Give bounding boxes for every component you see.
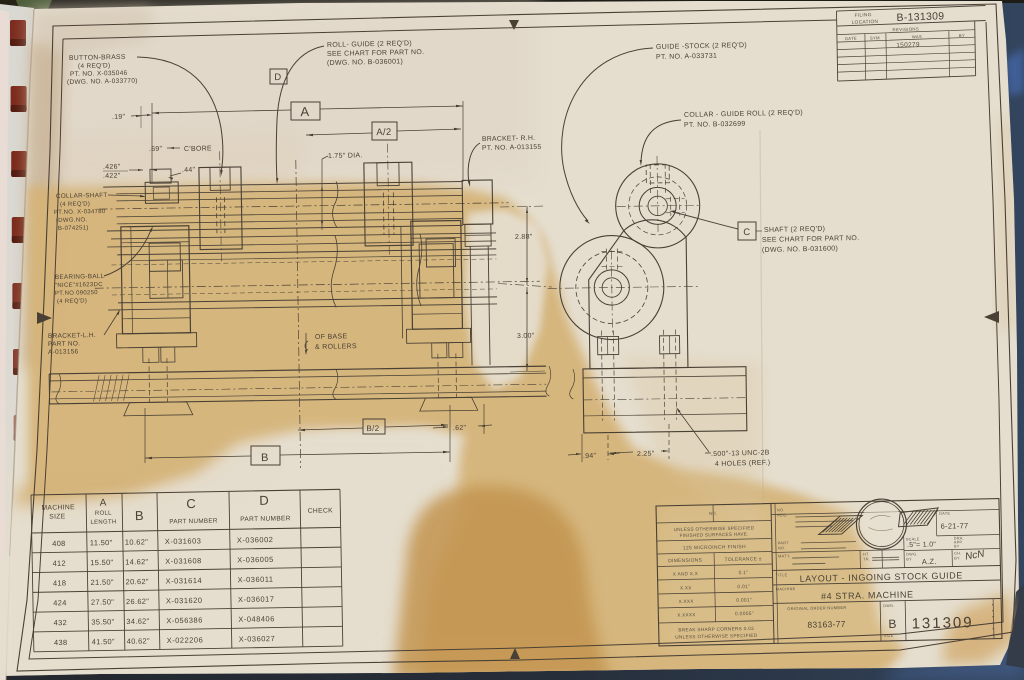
svg-text:X.XX: X.XX: [680, 585, 692, 590]
svg-text:X-036011: X-036011: [238, 575, 274, 585]
svg-text:150279: 150279: [896, 41, 920, 49]
svg-text:B: B: [135, 508, 144, 523]
svg-text:BUTTON-BRASS: BUTTON-BRASS: [69, 54, 126, 62]
svg-text:SYM: SYM: [870, 35, 880, 40]
svg-text:(4 REQ'D): (4 REQ'D): [78, 62, 111, 70]
svg-text:.62": .62": [453, 425, 467, 432]
svg-text:432: 432: [54, 618, 68, 627]
svg-text:PT. NO. X-035046: PT. NO. X-035046: [70, 70, 128, 78]
svg-text:X-031603: X-031603: [165, 536, 202, 546]
svg-text:.422": .422": [103, 173, 121, 180]
svg-text:131309: 131309: [911, 614, 973, 632]
svg-text:BRACKET- R.H.: BRACKET- R.H.: [482, 135, 536, 143]
svg-text:1.75" DIA.: 1.75" DIA.: [328, 152, 363, 160]
svg-text:BY: BY: [954, 544, 960, 548]
svg-text:NO.: NO.: [778, 546, 786, 550]
svg-text:X-031608: X-031608: [165, 556, 202, 566]
svg-text:PT.NO. X-034780: PT.NO. X-034780: [54, 209, 106, 216]
svg-text:X-036027: X-036027: [239, 634, 276, 644]
svg-text:SIZE: SIZE: [49, 513, 66, 520]
svg-text:424: 424: [53, 598, 67, 607]
svg-text:A: A: [100, 498, 107, 509]
svg-text:BRACKET-L.H.: BRACKET-L.H.: [48, 332, 96, 340]
svg-text:& ROLLERS: & ROLLERS: [315, 343, 357, 351]
svg-text:C'BORE: C'BORE: [184, 145, 212, 153]
svg-text:X-048406: X-048406: [238, 614, 275, 624]
svg-text:B-074251): B-074251): [58, 225, 89, 232]
svg-text:WAS: WAS: [912, 34, 922, 39]
svg-text:14.62": 14.62": [125, 557, 148, 566]
svg-text:4 HOLES (REF.): 4 HOLES (REF.): [715, 460, 771, 468]
svg-text:34.62": 34.62": [126, 617, 149, 626]
svg-text:20.62": 20.62": [126, 577, 149, 586]
svg-text:412: 412: [52, 559, 66, 568]
svg-text:.94": .94": [583, 453, 597, 460]
svg-text:BY: BY: [954, 556, 960, 560]
svg-text:41.50": 41.50": [92, 637, 115, 646]
svg-text:BEARING-BALL: BEARING-BALL: [55, 273, 105, 281]
svg-text:ROLL: ROLL: [95, 511, 112, 517]
svg-text:A.Z.: A.Z.: [922, 557, 937, 566]
svg-text:0.001": 0.001": [736, 597, 752, 603]
svg-text:OF BASE: OF BASE: [315, 333, 348, 341]
svg-text:FILING: FILING: [854, 12, 871, 19]
svg-text:0.1": 0.1": [739, 570, 749, 576]
svg-text:.19": .19": [112, 114, 126, 121]
svg-text:(4 REQ'D): (4 REQ'D): [57, 298, 87, 305]
svg-text:3.00": 3.00": [517, 333, 535, 340]
svg-text:TITLE: TITLE: [775, 573, 787, 577]
svg-text:TOLERANCE ±: TOLERANCE ±: [725, 556, 762, 563]
svg-text:(DWG.NO.: (DWG.NO.: [56, 217, 88, 224]
svg-text:X-036017: X-036017: [238, 594, 275, 604]
svg-text:DWG.: DWG.: [906, 552, 918, 556]
svg-text:X-031620: X-031620: [166, 596, 203, 606]
svg-text:.69": .69": [149, 146, 163, 153]
svg-text:A: A: [300, 104, 309, 119]
svg-text:CHECK: CHECK: [308, 507, 334, 514]
svg-text:B/2: B/2: [366, 424, 379, 433]
svg-text:BY: BY: [959, 33, 965, 38]
svg-text:X-056386: X-056386: [166, 616, 203, 626]
svg-text:PART: PART: [778, 541, 789, 545]
svg-text:15.50": 15.50": [90, 558, 113, 567]
svg-text:PT. NO. B-032699: PT. NO. B-032699: [684, 121, 746, 129]
svg-text:PT.NO 090250: PT.NO 090250: [55, 290, 98, 297]
svg-text:40.62": 40.62": [127, 636, 150, 645]
svg-text:DATE: DATE: [845, 36, 857, 41]
svg-text:CH.: CH.: [954, 551, 962, 555]
svg-text:NO.: NO.: [709, 511, 717, 516]
svg-text:X-036005: X-036005: [237, 555, 274, 565]
svg-text:C: C: [186, 496, 196, 511]
svg-text:2.25": 2.25": [637, 451, 655, 458]
svg-text:B: B: [888, 617, 897, 631]
svg-text:0.0005": 0.0005": [735, 611, 754, 617]
svg-text:HT.: HT.: [863, 552, 870, 556]
svg-text:A/2: A/2: [376, 127, 391, 138]
svg-text:DWG.: DWG.: [883, 604, 895, 608]
svg-text:B: B: [261, 452, 269, 464]
svg-text:27.50": 27.50": [91, 597, 114, 606]
svg-text:X-036002: X-036002: [237, 535, 274, 545]
svg-text:MAT'L: MAT'L: [778, 554, 790, 558]
svg-text:408: 408: [52, 539, 66, 548]
svg-text:418: 418: [53, 578, 67, 587]
svg-text:REQ.: REQ.: [777, 513, 788, 517]
svg-text:REVISIONS: REVISIONS: [892, 26, 919, 32]
svg-text:26.62": 26.62": [126, 597, 149, 606]
svg-text:438: 438: [54, 638, 68, 647]
svg-text:X AND X.X: X AND X.X: [673, 571, 698, 577]
svg-text:MACHINE: MACHINE: [41, 504, 75, 512]
svg-text:NO.: NO.: [777, 508, 785, 512]
svg-text:DATE: DATE: [939, 512, 950, 516]
svg-text:(DWG. NO. A-033770): (DWG. NO. A-033770): [67, 78, 138, 86]
svg-text:BY: BY: [906, 557, 912, 561]
svg-text:A-013156: A-013156: [48, 348, 79, 356]
svg-text:D: D: [259, 493, 269, 508]
svg-text:10.62": 10.62": [125, 537, 148, 546]
svg-text:LOCATION: LOCATION: [852, 19, 879, 26]
svg-text:11.50": 11.50": [90, 538, 113, 547]
svg-text:.426": .426": [103, 164, 121, 171]
svg-text:SIZE: SIZE: [884, 634, 894, 638]
svg-text:.44": .44": [182, 167, 196, 174]
svg-text:"NICE"#1623DC: "NICE"#1623DC: [55, 282, 103, 289]
svg-text:COLLAR-SHAFT: COLLAR-SHAFT: [56, 192, 108, 200]
svg-text:PART NUMBER: PART NUMBER: [169, 518, 218, 526]
svg-text:C: C: [743, 227, 750, 238]
svg-text:TR.: TR.: [863, 557, 870, 561]
svg-text:83163-77: 83163-77: [807, 619, 846, 630]
svg-text:#4 STRA. MACHINE: #4 STRA. MACHINE: [821, 589, 914, 601]
svg-text:SHAFT (2 REQ'D): SHAFT (2 REQ'D): [764, 226, 825, 234]
svg-text:LENGTH: LENGTH: [90, 519, 116, 525]
svg-text:X-022206: X-022206: [167, 635, 204, 645]
svg-text:PT. NO. A-033731: PT. NO. A-033731: [656, 53, 717, 61]
svg-text:X-031614: X-031614: [166, 576, 203, 586]
svg-text:6-21-77: 6-21-77: [940, 521, 968, 531]
svg-text:D: D: [274, 72, 281, 83]
svg-text:0.01": 0.01": [737, 584, 750, 590]
svg-text:2.88": 2.88": [515, 234, 533, 241]
svg-text:(4 REQ'D): (4 REQ'D): [60, 201, 90, 208]
svg-text:21.50": 21.50": [91, 578, 114, 587]
svg-text:PART NO.: PART NO.: [48, 340, 81, 348]
svg-text:DIMENSIONS: DIMENSIONS: [668, 557, 703, 564]
svg-text:.5"= 1.0": .5"= 1.0": [907, 541, 937, 549]
svg-text:X.XXX: X.XXX: [679, 599, 694, 604]
svg-text:B-131309: B-131309: [896, 10, 944, 24]
svg-text:PT. NO. A-013155: PT. NO. A-013155: [482, 144, 542, 152]
svg-text:MACHINE: MACHINE: [776, 587, 796, 591]
svg-text:X.XXXX: X.XXXX: [677, 612, 696, 617]
svg-text:PART NUMBER: PART NUMBER: [240, 515, 291, 523]
svg-text:35.50": 35.50": [91, 617, 114, 626]
